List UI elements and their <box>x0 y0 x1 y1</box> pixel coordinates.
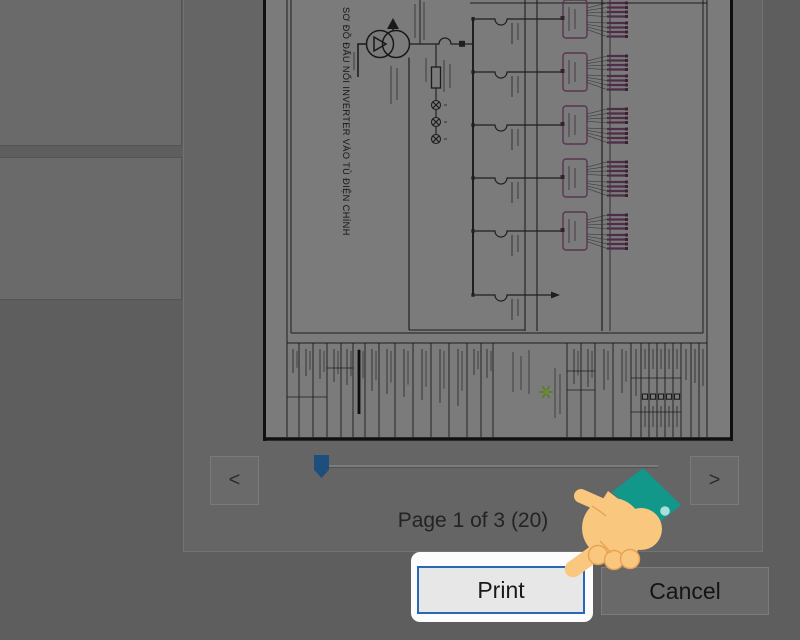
background-panel-2 <box>0 157 182 300</box>
drawing-title: SƠ ĐỒ ĐẤU NỐI INVERTER VÀO TỦ ĐIỆN CHÍNH <box>341 7 352 236</box>
schematic-drawing: SƠ ĐỒ ĐẤU NỐI INVERTER VÀO TỦ ĐIỆN CHÍNH <box>263 0 733 441</box>
cuff-button <box>660 506 670 516</box>
dimmed-print-dialog-screen: SƠ ĐỒ ĐẤU NỐI INVERTER VÀO TỦ ĐIỆN CHÍNH <box>0 0 800 640</box>
prev-page-button[interactable]: < <box>210 456 259 505</box>
background-panel-1 <box>0 0 182 146</box>
pointer-hand-icon <box>540 443 705 595</box>
preview-page: SƠ ĐỒ ĐẤU NỐI INVERTER VÀO TỦ ĐIỆN CHÍNH <box>263 0 733 441</box>
